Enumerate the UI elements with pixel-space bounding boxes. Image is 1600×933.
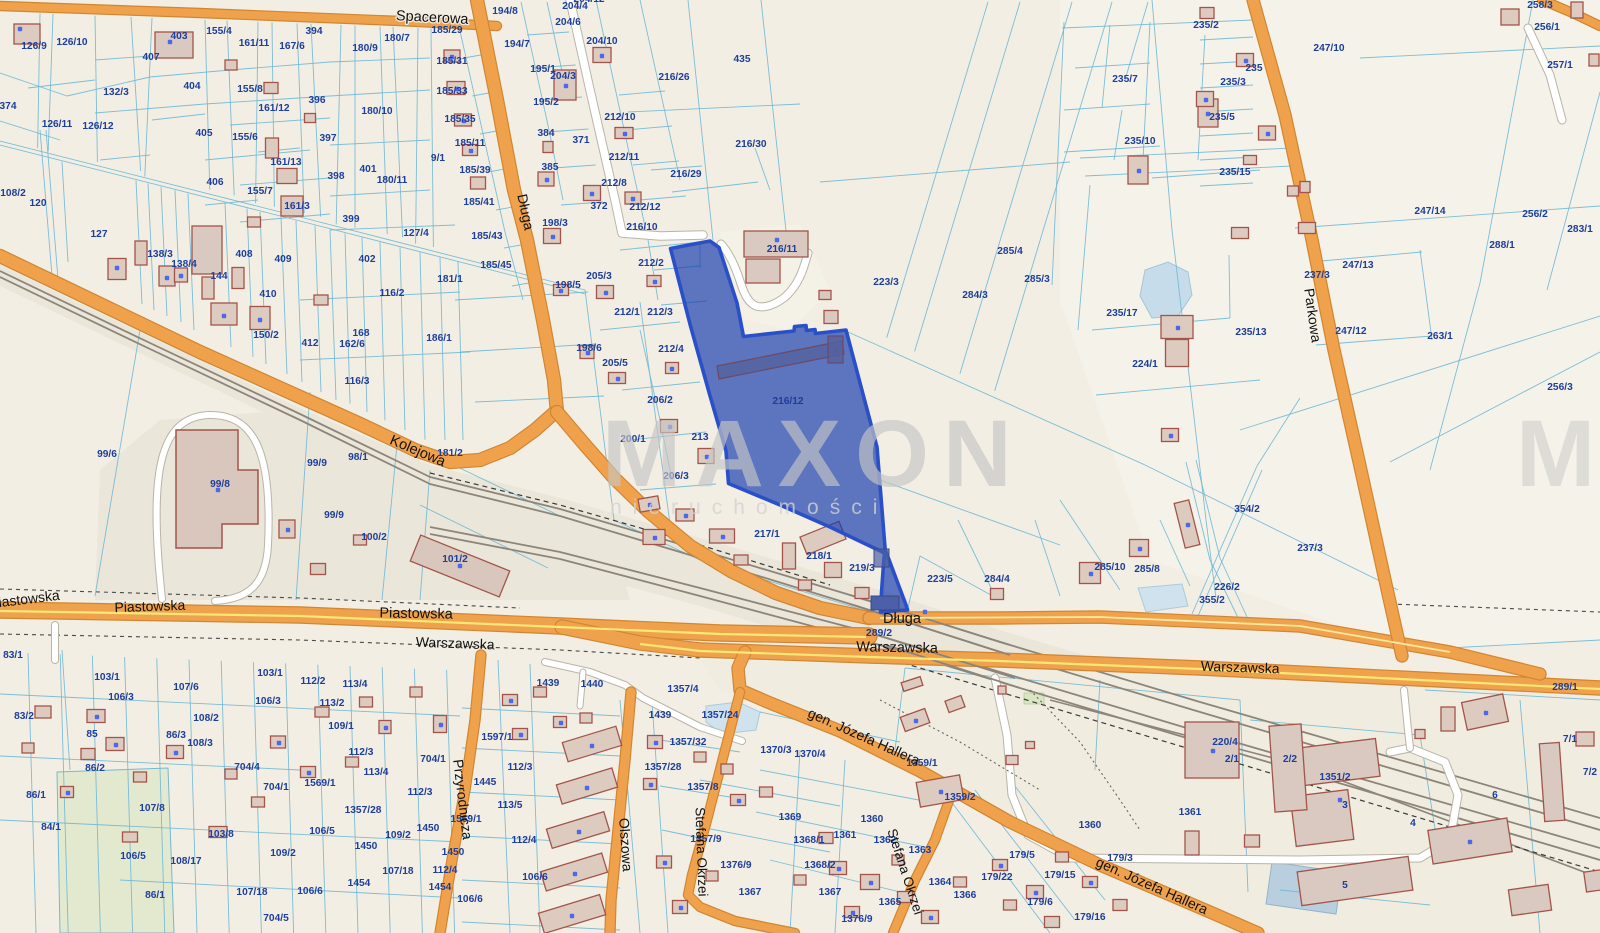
svg-text:1357/8: 1357/8 — [687, 782, 718, 793]
svg-text:113/4: 113/4 — [364, 767, 389, 778]
svg-text:168: 168 — [353, 328, 370, 339]
svg-text:399: 399 — [343, 214, 360, 225]
svg-text:106/3: 106/3 — [255, 696, 281, 707]
svg-text:212/10: 212/10 — [604, 112, 635, 123]
svg-text:1450: 1450 — [355, 841, 378, 852]
svg-text:150/2: 150/2 — [253, 330, 279, 341]
svg-text:161/11: 161/11 — [239, 38, 270, 49]
svg-text:112/3: 112/3 — [408, 787, 433, 798]
svg-text:224/1: 224/1 — [1132, 359, 1158, 370]
svg-text:138/3: 138/3 — [147, 249, 173, 260]
svg-text:109/2: 109/2 — [385, 830, 411, 841]
svg-text:126/11: 126/11 — [42, 119, 73, 130]
svg-text:1370/3: 1370/3 — [760, 745, 791, 756]
svg-text:1363: 1363 — [909, 845, 932, 856]
svg-text:257/1: 257/1 — [1547, 60, 1573, 71]
svg-text:179/5: 179/5 — [1009, 850, 1035, 861]
svg-text:217/1: 217/1 — [754, 529, 780, 540]
svg-text:409: 409 — [275, 254, 292, 265]
svg-text:6: 6 — [1492, 790, 1498, 801]
svg-text:112/3: 112/3 — [349, 747, 374, 758]
svg-text:109/1: 109/1 — [328, 721, 354, 732]
svg-text:212/12: 212/12 — [629, 202, 660, 213]
svg-text:1359/2: 1359/2 — [944, 792, 975, 803]
svg-text:204/10: 204/10 — [586, 36, 617, 47]
svg-text:1360: 1360 — [1079, 820, 1102, 831]
svg-text:107/6: 107/6 — [173, 682, 199, 693]
svg-text:5: 5 — [1342, 880, 1348, 891]
svg-text:1357/24: 1357/24 — [702, 710, 739, 721]
svg-text:7/1: 7/1 — [1563, 734, 1577, 745]
svg-text:Piastowska: Piastowska — [114, 597, 186, 615]
svg-text:83/2: 83/2 — [14, 711, 34, 722]
svg-text:100/2: 100/2 — [361, 532, 387, 543]
svg-text:405: 405 — [196, 128, 213, 139]
svg-text:216/30: 216/30 — [735, 139, 766, 150]
svg-text:185/11: 185/11 — [455, 138, 486, 149]
svg-text:127: 127 — [91, 229, 108, 240]
svg-text:86/3: 86/3 — [166, 730, 186, 741]
svg-text:1439: 1439 — [537, 678, 560, 689]
svg-text:109/2: 109/2 — [270, 848, 296, 859]
svg-text:185/39: 185/39 — [459, 165, 490, 176]
svg-text:155/6: 155/6 — [232, 132, 258, 143]
svg-text:MAXON: MAXON — [602, 401, 1026, 507]
svg-text:396: 396 — [309, 95, 326, 106]
svg-text:407: 407 — [143, 52, 160, 63]
svg-text:1376/9: 1376/9 — [841, 914, 872, 925]
svg-text:138/4: 138/4 — [171, 259, 197, 270]
svg-text:285/8: 285/8 — [1134, 564, 1160, 575]
svg-text:194/7: 194/7 — [504, 39, 530, 50]
svg-text:1450: 1450 — [442, 847, 465, 858]
svg-text:285/10: 285/10 — [1094, 562, 1125, 573]
svg-text:99/9: 99/9 — [307, 458, 327, 469]
svg-text:372: 372 — [591, 201, 608, 212]
svg-text:1357/4: 1357/4 — [667, 684, 698, 695]
svg-text:167/6: 167/6 — [279, 41, 305, 52]
svg-text:237/3: 237/3 — [1297, 543, 1323, 554]
svg-text:401: 401 — [360, 164, 377, 175]
svg-text:185/43: 185/43 — [471, 231, 502, 242]
svg-text:285/3: 285/3 — [1024, 274, 1050, 285]
svg-text:7/2: 7/2 — [1583, 767, 1597, 778]
svg-text:371: 371 — [573, 135, 590, 146]
svg-text:247/12: 247/12 — [1335, 326, 1366, 337]
svg-text:1357/28: 1357/28 — [645, 762, 682, 773]
svg-text:179/6: 179/6 — [1027, 897, 1053, 908]
svg-text:404: 404 — [184, 81, 201, 92]
svg-text:1369: 1369 — [779, 812, 802, 823]
svg-text:1365: 1365 — [879, 897, 902, 908]
svg-text:412: 412 — [302, 338, 319, 349]
svg-text:285/4: 285/4 — [997, 246, 1023, 257]
svg-text:212/2: 212/2 — [638, 258, 664, 269]
svg-text:1440: 1440 — [581, 679, 604, 690]
svg-text:179/16: 179/16 — [1074, 912, 1105, 923]
svg-text:223/3: 223/3 — [873, 277, 899, 288]
svg-text:108/17: 108/17 — [170, 856, 201, 867]
svg-text:107/18: 107/18 — [382, 866, 413, 877]
svg-text:101/2: 101/2 — [442, 554, 468, 565]
svg-text:194/8: 194/8 — [492, 6, 518, 17]
svg-text:704/5: 704/5 — [263, 913, 289, 924]
svg-text:198/3: 198/3 — [542, 218, 568, 229]
svg-text:195/2: 195/2 — [533, 97, 559, 108]
svg-text:112/4: 112/4 — [433, 865, 458, 876]
svg-text:107/18: 107/18 — [236, 887, 267, 898]
svg-text:126/12: 126/12 — [82, 121, 113, 132]
svg-text:403: 403 — [171, 31, 188, 42]
svg-text:258/3: 258/3 — [1527, 0, 1553, 11]
svg-text:235/5: 235/5 — [1209, 112, 1235, 123]
svg-text:103/1: 103/1 — [94, 672, 120, 683]
svg-text:204/3: 204/3 — [550, 71, 576, 82]
svg-text:106/5: 106/5 — [120, 851, 146, 862]
svg-text:204/4: 204/4 — [562, 1, 588, 12]
svg-text:283/1: 283/1 — [1567, 224, 1593, 235]
svg-text:247/13: 247/13 — [1342, 260, 1373, 271]
svg-text:185/35: 185/35 — [444, 114, 475, 125]
svg-text:406: 406 — [207, 177, 224, 188]
svg-text:288/1: 288/1 — [1489, 240, 1515, 251]
svg-text:185/45: 185/45 — [480, 260, 511, 271]
svg-text:99/9: 99/9 — [324, 510, 344, 521]
svg-text:108/2: 108/2 — [0, 188, 26, 199]
svg-text:216/29: 216/29 — [670, 169, 701, 180]
svg-text:355/2: 355/2 — [1199, 595, 1225, 606]
svg-text:Stefana Okrzei: Stefana Okrzei — [692, 807, 710, 897]
svg-text:284/4: 284/4 — [984, 574, 1010, 585]
svg-text:223/5: 223/5 — [927, 574, 953, 585]
svg-text:1367: 1367 — [739, 887, 762, 898]
svg-text:98/1: 98/1 — [348, 452, 368, 463]
svg-text:144: 144 — [211, 271, 228, 282]
svg-text:179/15: 179/15 — [1044, 870, 1075, 881]
svg-text:1367: 1367 — [819, 887, 842, 898]
svg-text:Piastowska: Piastowska — [379, 605, 454, 622]
svg-text:112/4: 112/4 — [512, 835, 537, 846]
svg-text:180/7: 180/7 — [384, 33, 410, 44]
svg-text:256/3: 256/3 — [1547, 382, 1573, 393]
svg-text:Warszawska: Warszawska — [856, 639, 939, 656]
svg-text:394: 394 — [306, 26, 323, 37]
svg-text:284/3: 284/3 — [962, 290, 988, 301]
svg-text:1439: 1439 — [649, 710, 672, 721]
svg-text:180/10: 180/10 — [361, 106, 392, 117]
svg-text:108/2: 108/2 — [193, 713, 219, 724]
svg-text:85: 85 — [86, 729, 98, 740]
svg-text:3: 3 — [1342, 800, 1348, 811]
svg-text:1450: 1450 — [417, 823, 440, 834]
svg-text:256/1: 256/1 — [1534, 22, 1560, 33]
svg-text:185/33: 185/33 — [436, 86, 467, 97]
svg-text:179/22: 179/22 — [981, 872, 1012, 883]
svg-text:186/1: 186/1 — [426, 333, 452, 344]
svg-text:83/1: 83/1 — [3, 650, 23, 661]
svg-text:235: 235 — [1246, 63, 1263, 74]
svg-text:212/8: 212/8 — [601, 178, 627, 189]
svg-text:704/4: 704/4 — [234, 762, 260, 773]
svg-text:1454: 1454 — [348, 878, 371, 889]
svg-text:113/2: 113/2 — [320, 698, 345, 709]
svg-text:1368/1: 1368/1 — [793, 835, 824, 846]
svg-text:1376/9: 1376/9 — [720, 860, 751, 871]
svg-text:1361: 1361 — [1179, 807, 1202, 818]
svg-text:385: 385 — [542, 162, 559, 173]
svg-text:398: 398 — [328, 171, 345, 182]
svg-text:1445: 1445 — [474, 777, 497, 788]
svg-text:161/3: 161/3 — [284, 201, 310, 212]
svg-text:2/2: 2/2 — [1283, 754, 1297, 765]
svg-text:181/1: 181/1 — [437, 274, 463, 285]
svg-text:704/1: 704/1 — [420, 754, 446, 765]
svg-text:204/6: 204/6 — [555, 17, 581, 28]
svg-text:212/1: 212/1 — [614, 307, 640, 318]
svg-text:212/4: 212/4 — [658, 344, 684, 355]
svg-text:2/1: 2/1 — [1225, 754, 1239, 765]
svg-text:155/7: 155/7 — [247, 186, 273, 197]
svg-text:226/2: 226/2 — [1214, 582, 1240, 593]
svg-text:MA: MA — [1516, 401, 1600, 507]
svg-text:99/8: 99/8 — [210, 479, 230, 490]
svg-text:1370/4: 1370/4 — [794, 749, 825, 760]
svg-text:435: 435 — [734, 54, 751, 65]
svg-text:354/2: 354/2 — [1234, 504, 1260, 515]
svg-text:1361: 1361 — [834, 830, 857, 841]
svg-text:161/13: 161/13 — [270, 157, 301, 168]
svg-text:374: 374 — [0, 101, 17, 112]
svg-text:86/1: 86/1 — [145, 890, 165, 901]
svg-text:263/1: 263/1 — [1427, 331, 1453, 342]
svg-text:1454: 1454 — [429, 882, 452, 893]
svg-text:289/1: 289/1 — [1552, 682, 1578, 693]
svg-text:113/5: 113/5 — [498, 800, 523, 811]
svg-text:216/26: 216/26 — [658, 72, 689, 83]
svg-text:402: 402 — [359, 254, 376, 265]
svg-text:106/6: 106/6 — [457, 894, 483, 905]
svg-text:Długa: Długa — [883, 611, 922, 627]
svg-text:185/41: 185/41 — [463, 197, 494, 208]
svg-text:126/10: 126/10 — [56, 37, 87, 48]
svg-text:nieruchomości: nieruchomości — [610, 496, 888, 519]
svg-text:120: 120 — [30, 198, 47, 209]
svg-text:106/6: 106/6 — [522, 872, 548, 883]
svg-text:99/6: 99/6 — [97, 449, 117, 460]
svg-text:84/1: 84/1 — [41, 822, 61, 833]
svg-text:219/3: 219/3 — [849, 563, 875, 574]
svg-text:235/10: 235/10 — [1124, 136, 1155, 147]
svg-text:384: 384 — [538, 128, 555, 139]
svg-text:198/6: 198/6 — [576, 343, 602, 354]
svg-text:155/8: 155/8 — [237, 84, 263, 95]
svg-text:106/3: 106/3 — [108, 692, 134, 703]
svg-text:237/3: 237/3 — [1304, 270, 1330, 281]
svg-text:86/1: 86/1 — [26, 790, 46, 801]
svg-text:112/2: 112/2 — [301, 676, 326, 687]
svg-text:1357/32: 1357/32 — [670, 737, 707, 748]
svg-text:247/14: 247/14 — [1414, 206, 1445, 217]
svg-text:235/17: 235/17 — [1106, 308, 1137, 319]
svg-text:116/2: 116/2 — [380, 288, 405, 299]
svg-text:410: 410 — [260, 289, 277, 300]
svg-text:4: 4 — [1410, 818, 1416, 829]
svg-text:704/1: 704/1 — [263, 782, 289, 793]
svg-text:103/8: 103/8 — [208, 829, 234, 840]
svg-text:106/5: 106/5 — [309, 826, 335, 837]
svg-text:162/6: 162/6 — [339, 339, 365, 350]
svg-text:212/3: 212/3 — [647, 307, 673, 318]
svg-text:1597/1: 1597/1 — [481, 732, 512, 743]
svg-text:235/2: 235/2 — [1193, 20, 1219, 31]
svg-text:112/3: 112/3 — [508, 762, 533, 773]
svg-text:205/5: 205/5 — [602, 358, 628, 369]
svg-text:106/6: 106/6 — [297, 886, 323, 897]
svg-text:132/3: 132/3 — [103, 87, 129, 98]
svg-text:1569/1: 1569/1 — [304, 778, 335, 789]
svg-text:Warszawska: Warszawska — [416, 634, 496, 653]
svg-text:216/10: 216/10 — [626, 222, 657, 233]
svg-text:116/3: 116/3 — [345, 376, 370, 387]
svg-text:126/9: 126/9 — [21, 41, 47, 52]
svg-text:205/3: 205/3 — [586, 271, 612, 282]
svg-text:216/11: 216/11 — [767, 244, 798, 255]
svg-text:113/4: 113/4 — [343, 679, 368, 690]
svg-text:397: 397 — [320, 133, 337, 144]
svg-text:180/11: 180/11 — [377, 175, 408, 186]
svg-text:9/1: 9/1 — [431, 153, 445, 164]
svg-text:1364: 1364 — [929, 877, 952, 888]
svg-text:235/7: 235/7 — [1112, 74, 1138, 85]
svg-text:408: 408 — [236, 249, 253, 260]
svg-text:289/2: 289/2 — [866, 627, 892, 639]
svg-text:185/31: 185/31 — [436, 56, 467, 67]
svg-text:220/4: 220/4 — [1212, 737, 1238, 748]
svg-text:247/10: 247/10 — [1313, 43, 1344, 54]
svg-text:1368/2: 1368/2 — [804, 860, 835, 871]
svg-text:161/12: 161/12 — [258, 103, 289, 114]
svg-text:86/2: 86/2 — [85, 763, 105, 774]
svg-text:1360: 1360 — [861, 814, 884, 825]
svg-text:1357/28: 1357/28 — [345, 805, 382, 816]
svg-text:1366: 1366 — [954, 890, 977, 901]
svg-text:235/15: 235/15 — [1219, 167, 1250, 178]
svg-text:Warszawska: Warszawska — [1201, 658, 1281, 677]
svg-text:155/4: 155/4 — [206, 26, 232, 37]
svg-text:198/5: 198/5 — [555, 280, 581, 291]
svg-text:256/2: 256/2 — [1522, 209, 1548, 220]
svg-text:235/3: 235/3 — [1220, 77, 1246, 88]
svg-text:212/11: 212/11 — [609, 152, 640, 163]
svg-text:103/1: 103/1 — [257, 668, 283, 679]
svg-text:218/1: 218/1 — [806, 551, 832, 562]
svg-text:1351/2: 1351/2 — [1319, 772, 1350, 783]
svg-text:108/3: 108/3 — [187, 738, 213, 749]
svg-text:107/8: 107/8 — [139, 803, 165, 814]
svg-text:180/9: 180/9 — [352, 43, 378, 54]
svg-text:235/13: 235/13 — [1235, 327, 1266, 338]
svg-text:127/4: 127/4 — [403, 228, 429, 239]
